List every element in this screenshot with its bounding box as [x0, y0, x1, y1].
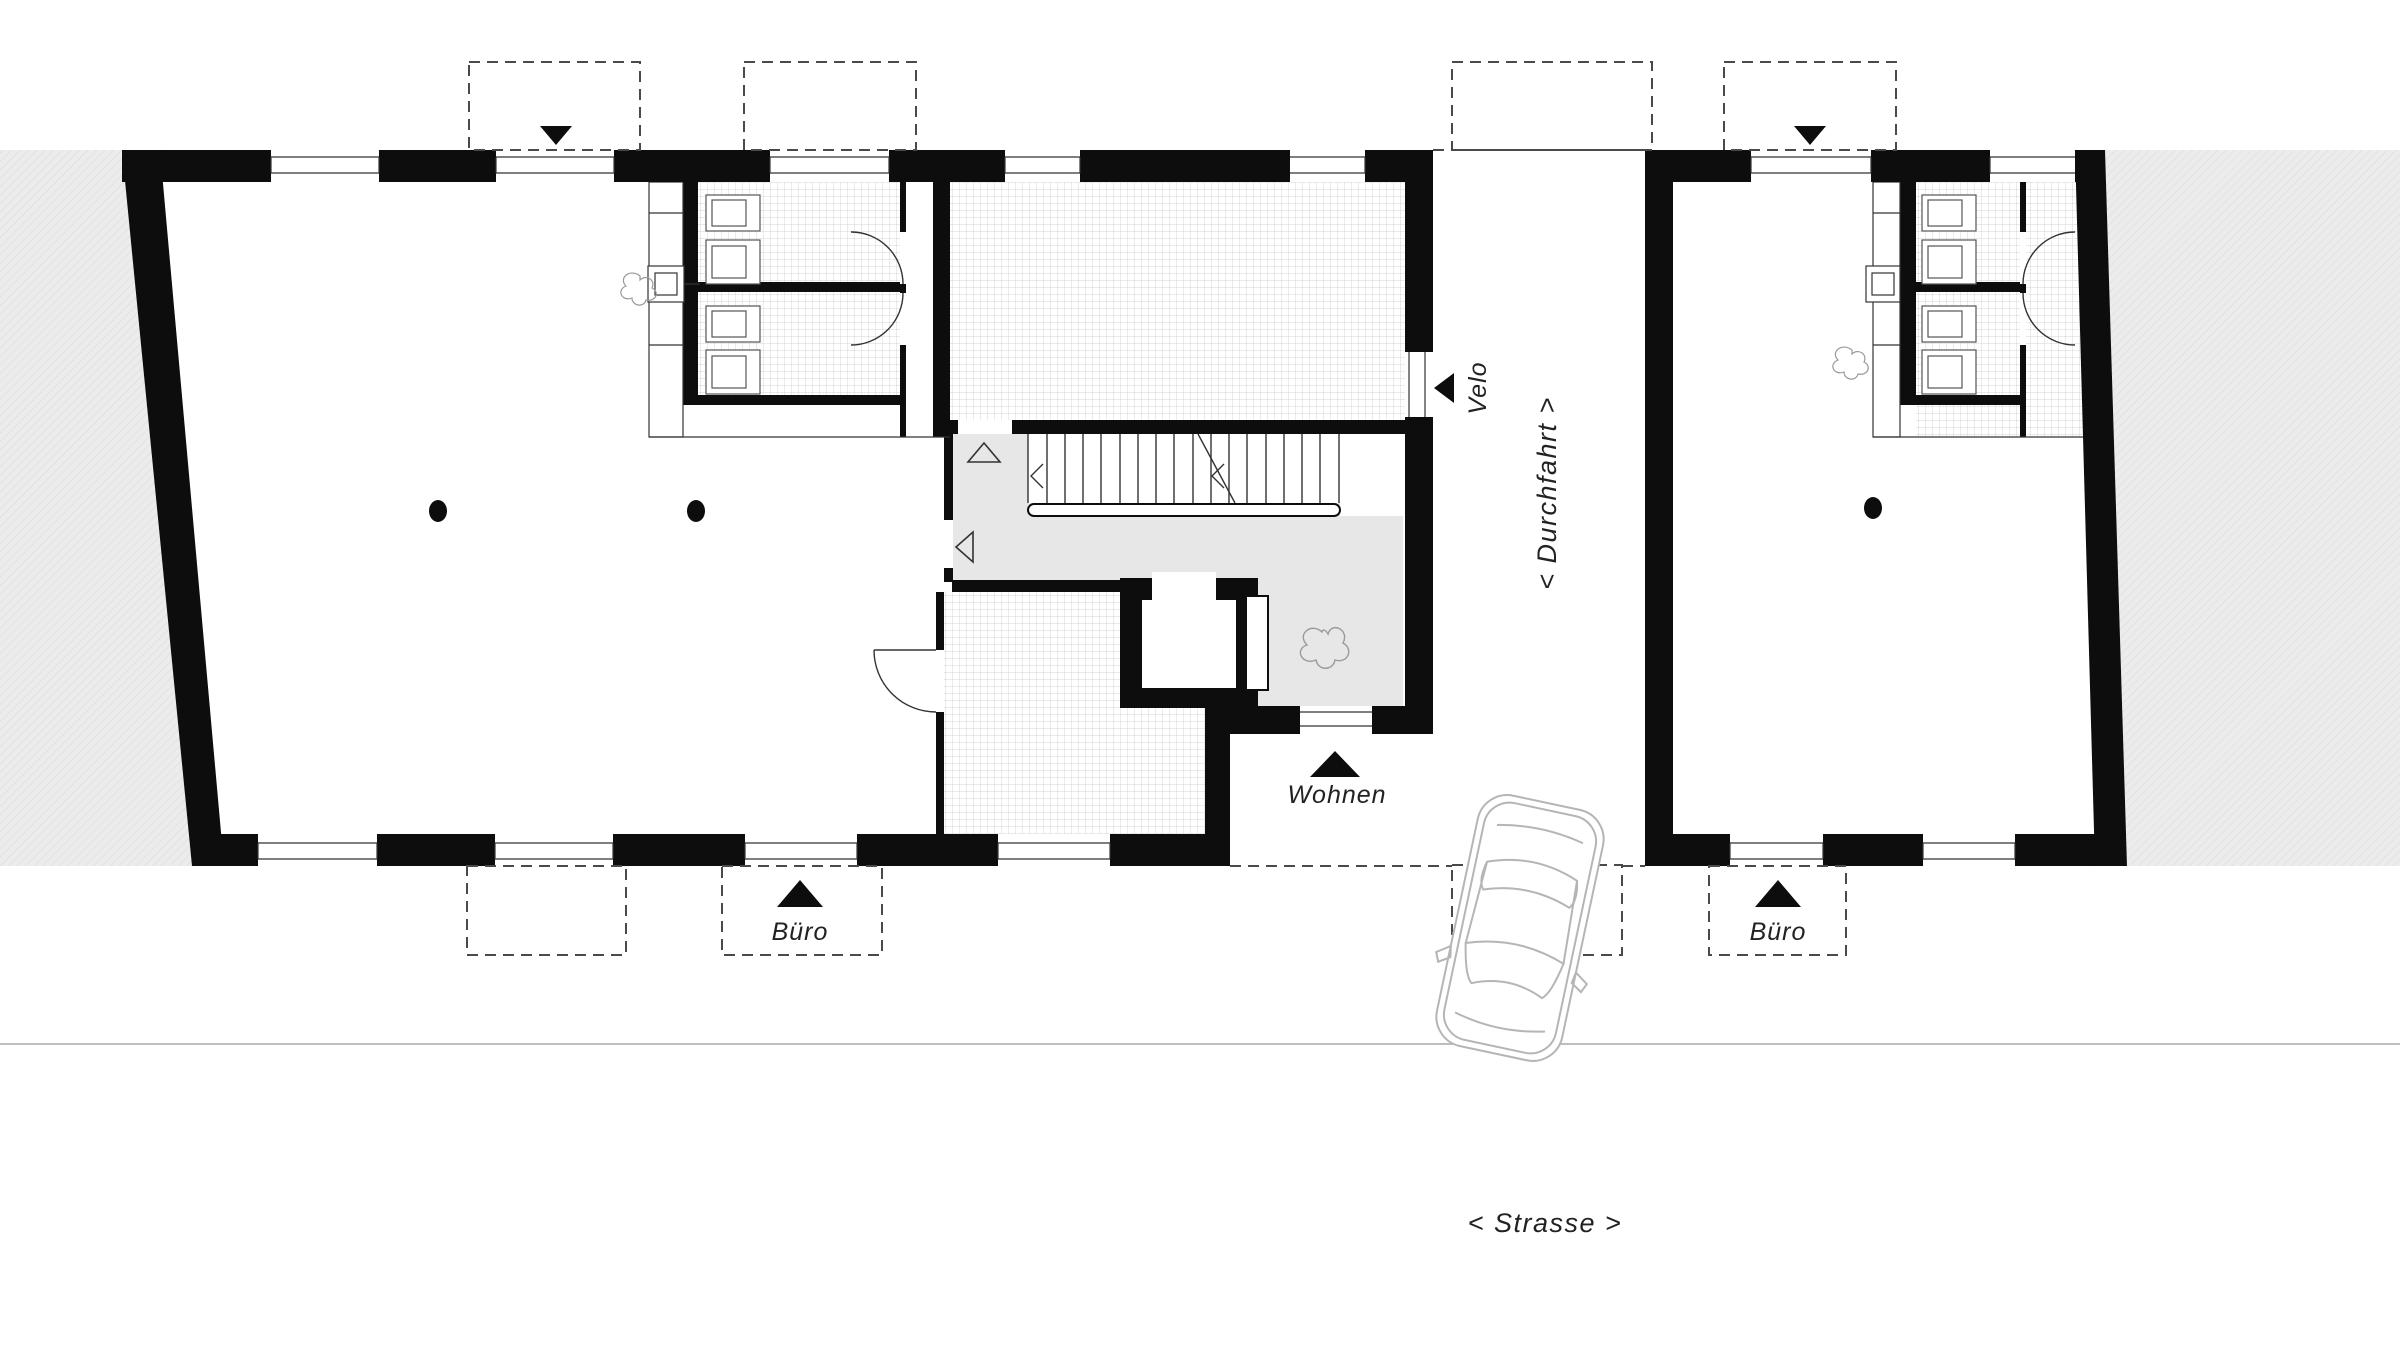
stair-handrail: [1028, 504, 1340, 516]
entrance-arrow-down-left-icon: [540, 126, 572, 145]
buero-left-arrow-icon: [777, 880, 823, 907]
column: [687, 500, 705, 522]
elevator-cab: [1142, 600, 1236, 688]
neighbor-parcel-right: [2105, 150, 2400, 866]
strasse-label: < Strasse >: [1468, 1208, 1623, 1238]
wohnen-label: Wohnen: [1287, 781, 1386, 809]
column: [1864, 497, 1882, 519]
buero-right-label: Büro: [1750, 918, 1807, 946]
wohnen-door-opening: [1300, 706, 1372, 734]
shaft-box: [1866, 266, 1900, 302]
column: [429, 500, 447, 522]
buero-right-arrow-icon: [1755, 880, 1801, 907]
durchfahrt-label: < Durchfahrt >: [1532, 396, 1562, 590]
entrance-arrow-down-right-icon: [1794, 126, 1826, 145]
buero-left-label: Büro: [772, 918, 829, 946]
tiled-room-upper: [950, 182, 1405, 420]
floor-plan-page: Velo < Durchfahrt > Wohnen Büro Büro < S…: [0, 0, 2400, 1350]
velo-label: Velo: [1464, 361, 1492, 414]
staircase: [1028, 434, 1403, 516]
building-right: [1645, 150, 2127, 866]
floor-plan-drawing: Velo < Durchfahrt > Wohnen Büro Büro < S…: [0, 0, 2400, 1350]
elevator-door-leaf: [1246, 596, 1268, 690]
